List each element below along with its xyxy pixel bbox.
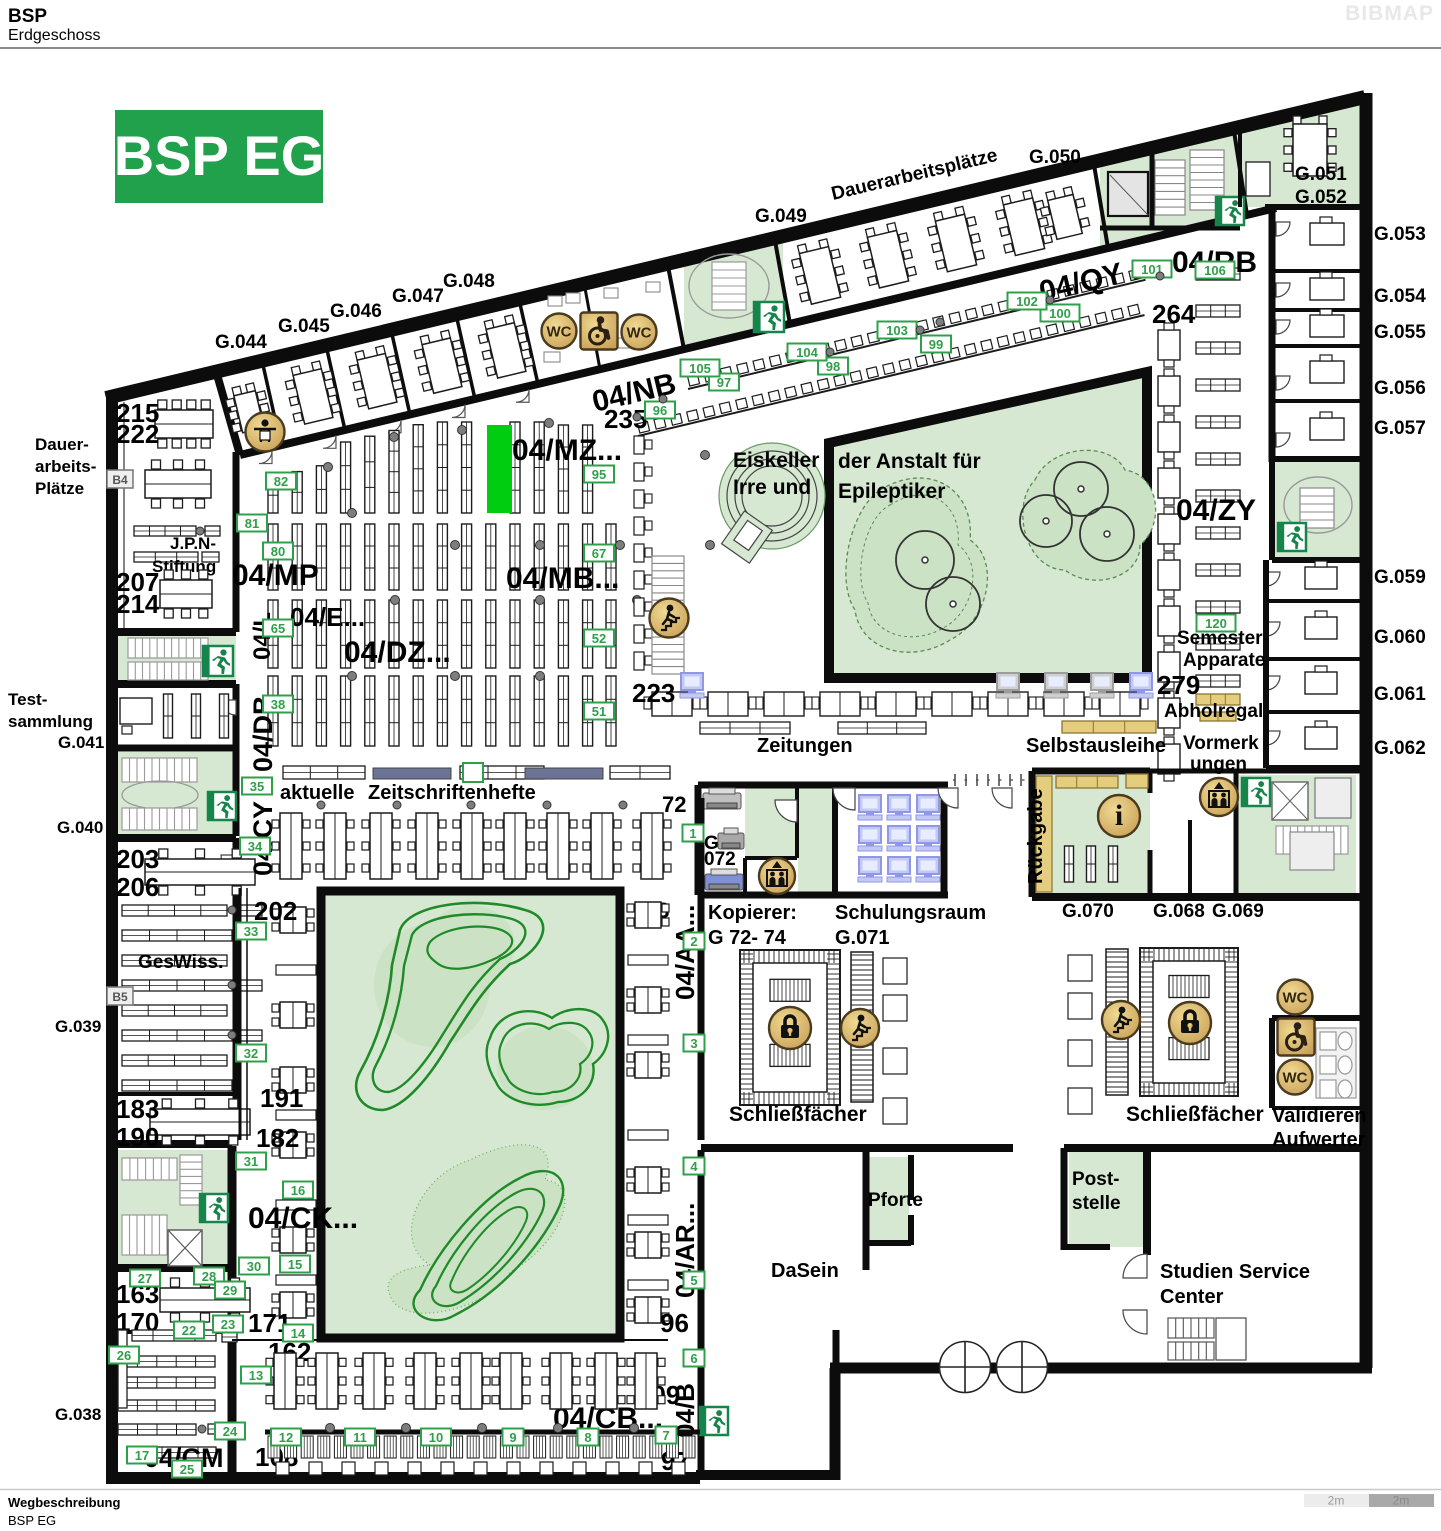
- svg-text:10: 10: [429, 1430, 443, 1445]
- svg-text:14: 14: [291, 1326, 306, 1341]
- svg-text:Irre und: Irre und: [733, 476, 811, 499]
- svg-text:98: 98: [826, 359, 840, 374]
- svg-text:G.048: G.048: [443, 271, 495, 292]
- svg-text:072: 072: [704, 849, 736, 870]
- svg-text:04/ZY: 04/ZY: [1176, 494, 1256, 527]
- svg-text:80: 80: [271, 544, 285, 559]
- svg-text:G.069: G.069: [1212, 901, 1264, 922]
- svg-text:206: 206: [116, 872, 159, 902]
- svg-text:Plätze: Plätze: [35, 479, 84, 498]
- svg-text:Test-: Test-: [8, 690, 47, 709]
- svg-text:G.070: G.070: [1062, 901, 1114, 922]
- svg-text:24: 24: [223, 1424, 238, 1439]
- svg-text:34: 34: [248, 839, 263, 854]
- svg-text:G.062: G.062: [1374, 738, 1426, 759]
- svg-text:B4: B4: [112, 473, 128, 487]
- svg-text:16: 16: [291, 1183, 305, 1198]
- svg-text:32: 32: [244, 1046, 258, 1061]
- svg-text:38: 38: [271, 697, 285, 712]
- svg-text:95: 95: [592, 467, 606, 482]
- svg-text:04/MB...: 04/MB...: [506, 562, 619, 595]
- svg-text:105: 105: [689, 361, 711, 376]
- svg-text:7: 7: [662, 1428, 669, 1443]
- svg-text:182: 182: [256, 1123, 299, 1153]
- svg-text:ungen: ungen: [1190, 754, 1247, 775]
- svg-text:2: 2: [690, 934, 697, 949]
- svg-text:81: 81: [245, 516, 259, 531]
- svg-text:Pforte: Pforte: [868, 1190, 923, 1211]
- svg-text:BIBMAP: BIBMAP: [1345, 2, 1434, 25]
- svg-text:15: 15: [288, 1257, 302, 1272]
- svg-text:sammlung: sammlung: [8, 712, 93, 731]
- svg-text:arbeits-: arbeits-: [35, 457, 96, 476]
- svg-text:191: 191: [260, 1083, 303, 1113]
- svg-text:Selbstausleihe: Selbstausleihe: [1026, 735, 1166, 757]
- svg-text:104: 104: [796, 345, 818, 360]
- svg-text:G.055: G.055: [1374, 322, 1426, 343]
- svg-text:04/CK...: 04/CK...: [248, 1202, 358, 1235]
- svg-text:4: 4: [690, 1159, 698, 1174]
- svg-text:2m: 2m: [1393, 1494, 1410, 1508]
- svg-text:222: 222: [116, 419, 159, 449]
- svg-text:G.053: G.053: [1374, 224, 1426, 245]
- svg-text:G.038: G.038: [55, 1405, 101, 1424]
- svg-text:9: 9: [509, 1430, 516, 1445]
- svg-text:aktuelle: aktuelle: [280, 782, 354, 804]
- svg-text:279: 279: [1157, 670, 1200, 700]
- svg-text:30: 30: [247, 1259, 261, 1274]
- svg-text:25: 25: [180, 1462, 194, 1477]
- svg-text:51: 51: [592, 704, 606, 719]
- svg-text:G.044: G.044: [215, 332, 267, 353]
- svg-text:Kopierer:: Kopierer:: [708, 902, 797, 924]
- svg-text:Validieren: Validieren: [1272, 1105, 1367, 1127]
- svg-text:G.046: G.046: [330, 301, 382, 322]
- svg-text:31: 31: [244, 1154, 258, 1169]
- svg-text:G.047: G.047: [392, 286, 444, 307]
- svg-text:214: 214: [116, 589, 160, 619]
- svg-text:G.061: G.061: [1374, 684, 1426, 705]
- svg-text:65: 65: [271, 621, 285, 636]
- svg-text:102: 102: [1016, 294, 1038, 309]
- svg-text:BSP EG: BSP EG: [8, 1513, 56, 1528]
- svg-text:67: 67: [592, 546, 606, 561]
- svg-text:GesWiss.: GesWiss.: [138, 952, 223, 973]
- svg-text:04/MP: 04/MP: [232, 559, 319, 592]
- svg-text:Zeitschriftenhefte: Zeitschriftenhefte: [368, 782, 536, 804]
- svg-text:23: 23: [221, 1317, 235, 1332]
- svg-text:33: 33: [244, 924, 258, 939]
- svg-text:BSP EG: BSP EG: [114, 124, 325, 187]
- svg-text:8: 8: [584, 1430, 591, 1445]
- svg-text:04/MZ...: 04/MZ...: [512, 434, 622, 467]
- svg-text:G.068: G.068: [1153, 901, 1205, 922]
- svg-text:G.071: G.071: [835, 927, 889, 949]
- svg-text:i: i: [1115, 799, 1123, 832]
- svg-text:G.049: G.049: [755, 206, 807, 227]
- svg-text:Schulungsraum: Schulungsraum: [835, 902, 986, 924]
- svg-text:100: 100: [1049, 306, 1071, 321]
- svg-text:103: 103: [886, 323, 908, 338]
- svg-text:52: 52: [592, 631, 606, 646]
- svg-text:203: 203: [116, 844, 159, 874]
- svg-text:72: 72: [662, 792, 686, 817]
- svg-text:120: 120: [1205, 616, 1227, 631]
- svg-text:Schließfächer: Schließfächer: [729, 1103, 867, 1126]
- svg-text:WC: WC: [547, 324, 572, 341]
- svg-text:04/DZ...: 04/DZ...: [344, 636, 451, 669]
- svg-text:2m: 2m: [1328, 1494, 1345, 1508]
- svg-text:106: 106: [1204, 263, 1226, 278]
- svg-text:G.052: G.052: [1295, 187, 1347, 208]
- svg-text:1: 1: [689, 826, 696, 841]
- svg-text:190: 190: [116, 1122, 159, 1152]
- svg-text:Center: Center: [1160, 1286, 1224, 1308]
- svg-text:82: 82: [274, 474, 288, 489]
- svg-text:Vormerk: Vormerk: [1183, 733, 1259, 754]
- svg-text:96: 96: [660, 1308, 689, 1338]
- svg-text:stelle: stelle: [1072, 1193, 1121, 1214]
- svg-text:183: 183: [116, 1094, 159, 1124]
- svg-text:11: 11: [353, 1430, 367, 1445]
- svg-text:B5: B5: [112, 990, 128, 1004]
- svg-text:12: 12: [279, 1430, 293, 1445]
- svg-text:G.051: G.051: [1295, 164, 1347, 185]
- svg-text:G.056: G.056: [1374, 378, 1426, 399]
- svg-text:G.045: G.045: [278, 316, 330, 337]
- svg-text:Rückgabe: Rückgabe: [1025, 788, 1047, 884]
- svg-text:3: 3: [690, 1036, 697, 1051]
- svg-text:27: 27: [138, 1271, 152, 1286]
- svg-text:Wegbeschreibung: Wegbeschreibung: [8, 1495, 121, 1510]
- svg-text:5: 5: [690, 1273, 697, 1288]
- svg-text:der Anstalt für: der Anstalt für: [838, 450, 981, 473]
- svg-text:99: 99: [929, 337, 943, 352]
- svg-text:G.060: G.060: [1374, 627, 1426, 648]
- svg-text:Studien Service: Studien Service: [1160, 1261, 1310, 1283]
- svg-text:17: 17: [135, 1448, 149, 1463]
- svg-text:04/E...: 04/E...: [290, 602, 365, 632]
- svg-text:WC: WC: [1283, 1070, 1308, 1087]
- svg-text:WC: WC: [1283, 990, 1308, 1007]
- svg-text:Abholregal: Abholregal: [1164, 701, 1263, 722]
- svg-text:G.040: G.040: [57, 818, 103, 837]
- svg-text:DaSein: DaSein: [771, 1260, 839, 1282]
- svg-text:G.054: G.054: [1374, 286, 1426, 307]
- svg-text:G.059: G.059: [1374, 567, 1426, 588]
- svg-text:26: 26: [117, 1348, 131, 1363]
- svg-text:Epileptiker: Epileptiker: [838, 480, 945, 503]
- svg-text:Zeitungen: Zeitungen: [757, 735, 853, 757]
- svg-text:Post-: Post-: [1072, 1169, 1120, 1190]
- svg-text:G 72- 74: G 72- 74: [708, 927, 787, 949]
- svg-text:Dauer-: Dauer-: [35, 435, 89, 454]
- svg-text:223: 223: [632, 678, 675, 708]
- svg-text:Schließfächer: Schließfächer: [1126, 1103, 1264, 1126]
- svg-text:Erdgeschoss: Erdgeschoss: [8, 27, 101, 44]
- svg-text:264: 264: [1152, 299, 1196, 329]
- svg-text:13: 13: [249, 1368, 263, 1383]
- svg-text:04/AA...: 04/AA...: [670, 905, 700, 1000]
- svg-text:Eiskeller: Eiskeller: [733, 449, 819, 472]
- svg-text:Apparate: Apparate: [1183, 650, 1265, 671]
- svg-text:G.050: G.050: [1029, 147, 1081, 168]
- svg-text:BSP: BSP: [8, 6, 47, 27]
- svg-text:96: 96: [653, 403, 667, 418]
- svg-text:G.057: G.057: [1374, 418, 1426, 439]
- svg-text:WC: WC: [627, 325, 652, 342]
- svg-text:6: 6: [690, 1351, 697, 1366]
- svg-text:G.039: G.039: [55, 1017, 101, 1036]
- svg-text:29: 29: [223, 1283, 237, 1298]
- svg-text:Aufwerter: Aufwerter: [1272, 1129, 1366, 1151]
- svg-text:22: 22: [182, 1323, 196, 1338]
- svg-text:J.P.N-: J.P.N-: [170, 534, 216, 553]
- svg-text:G.041: G.041: [58, 733, 104, 752]
- svg-text:35: 35: [250, 779, 264, 794]
